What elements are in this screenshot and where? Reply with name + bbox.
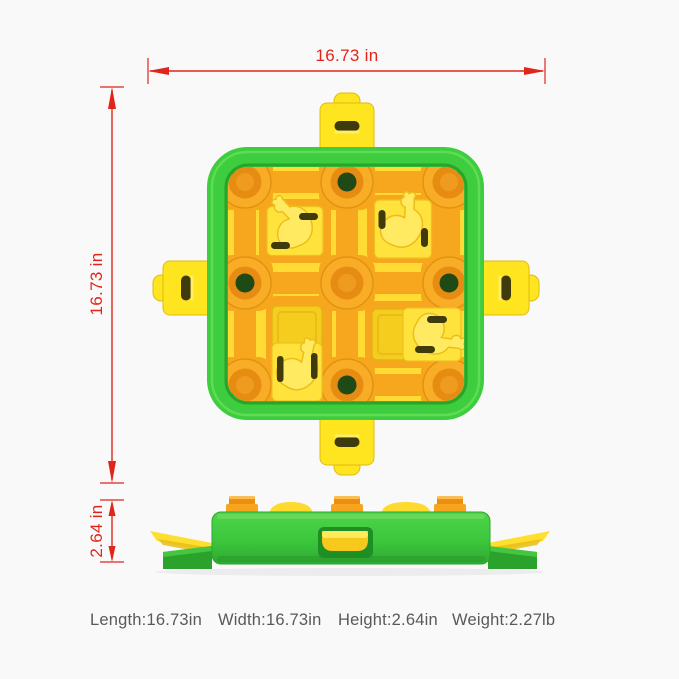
dimension-height: 16.73 in xyxy=(87,87,124,483)
spec-row: Length:16.73in Width:16.73in Height:2.64… xyxy=(90,611,555,629)
arrowhead-up-icon xyxy=(108,87,116,109)
slider-cover-bottom-right xyxy=(403,304,469,370)
food-well-closed xyxy=(319,255,375,311)
latch-tab-bottom xyxy=(320,413,374,475)
front-latch xyxy=(318,527,373,558)
spec-width: Width:16.73in xyxy=(218,611,322,629)
side-clip-right xyxy=(488,531,550,569)
toy-side-view xyxy=(150,496,550,576)
height-dimension-label: 16.73 in xyxy=(87,253,106,316)
diagram-canvas: 16.73 in 16.73 in 2.64 in xyxy=(0,0,679,679)
arrowhead-left-icon xyxy=(148,67,169,75)
dimension-depth: 2.64 in xyxy=(87,500,124,562)
latch-tab-left xyxy=(153,261,215,315)
toy-top-view xyxy=(153,93,539,475)
puzzle-board xyxy=(217,154,477,413)
latch-tab-top xyxy=(320,93,374,155)
arrowhead-down-icon xyxy=(108,461,116,483)
arrowhead-up-icon xyxy=(109,500,116,516)
arrowhead-down-icon xyxy=(109,546,116,562)
spec-weight: Weight:2.27lb xyxy=(452,611,555,629)
product-dimension-diagram: 16.73 in 16.73 in 2.64 in xyxy=(0,0,679,679)
depth-dimension-label: 2.64 in xyxy=(87,504,106,557)
side-clip-left xyxy=(150,531,212,569)
spec-length: Length:16.73in xyxy=(90,611,202,629)
arrowhead-right-icon xyxy=(524,67,545,75)
latch-tab-right xyxy=(477,261,539,315)
spec-height: Height:2.64in xyxy=(338,611,438,629)
dimension-width: 16.73 in xyxy=(148,46,545,84)
width-dimension-label: 16.73 in xyxy=(316,46,379,65)
